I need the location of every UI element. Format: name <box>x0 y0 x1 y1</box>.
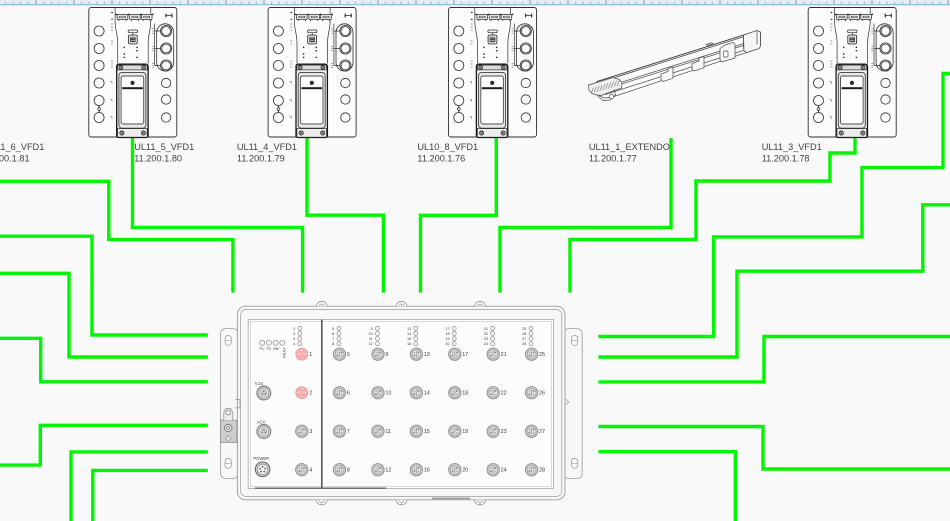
svg-text:20: 20 <box>462 468 468 474</box>
svg-text:11.200.1.76: 11.200.1.76 <box>417 153 465 163</box>
svg-text:11.200.1.79: 11.200.1.79 <box>237 153 285 163</box>
svg-text:UL10_8_VFD1: UL10_8_VFD1 <box>417 142 478 152</box>
svg-text:11.200.1.80: 11.200.1.80 <box>134 153 182 163</box>
svg-text:28: 28 <box>539 468 545 474</box>
svg-text:6: 6 <box>332 332 334 336</box>
svg-text:11.200.1.77: 11.200.1.77 <box>589 153 637 163</box>
svg-text:12: 12 <box>385 468 391 474</box>
svg-text:24: 24 <box>501 468 507 474</box>
svg-text:4: 4 <box>293 342 295 346</box>
svg-text:25: 25 <box>522 327 526 331</box>
svg-text:7: 7 <box>347 429 350 435</box>
svg-text:7: 7 <box>332 337 334 341</box>
svg-text:23: 23 <box>501 429 507 435</box>
svg-text:P2: P2 <box>267 347 271 351</box>
svg-text:11: 11 <box>369 337 373 341</box>
svg-text:FAULT: FAULT <box>283 347 287 357</box>
svg-text:17: 17 <box>462 352 468 358</box>
svg-text:20: 20 <box>445 342 449 346</box>
svg-text:4: 4 <box>309 468 312 474</box>
svg-text:18: 18 <box>445 332 449 336</box>
svg-text:25: 25 <box>539 352 545 358</box>
svg-text:16: 16 <box>424 468 430 474</box>
svg-text:16: 16 <box>407 342 411 346</box>
svg-text:9: 9 <box>371 327 373 331</box>
svg-text:1: 1 <box>309 352 312 358</box>
svg-text:26: 26 <box>539 391 545 397</box>
svg-text:11.200.1.78: 11.200.1.78 <box>762 153 810 163</box>
svg-text:2: 2 <box>309 391 312 397</box>
svg-text:15: 15 <box>407 337 411 341</box>
svg-text:UL11_1_EXTENDO: UL11_1_EXTENDO <box>589 142 670 152</box>
svg-text:11.200.1.81: 11.200.1.81 <box>0 153 30 163</box>
svg-text:UL11_4_VFD1: UL11_4_VFD1 <box>237 142 297 152</box>
svg-text:10: 10 <box>385 391 391 397</box>
svg-text:26: 26 <box>522 332 526 336</box>
svg-text:12: 12 <box>369 342 373 346</box>
svg-text:21: 21 <box>501 352 507 358</box>
svg-text:27: 27 <box>522 337 526 341</box>
svg-text:14: 14 <box>424 391 430 397</box>
svg-text:23: 23 <box>484 337 488 341</box>
svg-text:22: 22 <box>501 391 507 397</box>
svg-text:5: 5 <box>332 327 334 331</box>
svg-text:9: 9 <box>385 352 388 358</box>
svg-text:24: 24 <box>484 342 488 346</box>
svg-text:RM: RM <box>273 347 279 351</box>
svg-text:28: 28 <box>522 342 526 346</box>
svg-text:2: 2 <box>293 332 295 336</box>
svg-text:11: 11 <box>385 429 391 435</box>
svg-text:19: 19 <box>445 337 449 341</box>
svg-text:19: 19 <box>462 429 468 435</box>
svg-text:22: 22 <box>484 332 488 336</box>
svg-text:10: 10 <box>369 332 373 336</box>
svg-text:14: 14 <box>407 332 411 336</box>
svg-text:V.24: V.24 <box>255 381 264 386</box>
svg-text:27: 27 <box>539 429 545 435</box>
svg-text:13: 13 <box>407 327 411 331</box>
svg-text:UL11_6_VFD1: UL11_6_VFD1 <box>0 142 44 152</box>
svg-text:POWER: POWER <box>253 456 269 461</box>
svg-text:13: 13 <box>424 352 430 358</box>
svg-text:3: 3 <box>293 337 295 341</box>
svg-text:15: 15 <box>424 429 430 435</box>
svg-text:17: 17 <box>445 327 449 331</box>
svg-text:18: 18 <box>462 391 468 397</box>
svg-text:6: 6 <box>347 391 350 397</box>
svg-text:UL11_5_VFD1: UL11_5_VFD1 <box>134 142 194 152</box>
svg-text:3: 3 <box>309 429 312 435</box>
svg-text:8: 8 <box>347 468 350 474</box>
svg-text:UL11_3_VFD1: UL11_3_VFD1 <box>762 142 822 152</box>
svg-text:8: 8 <box>332 342 334 346</box>
svg-text:P1: P1 <box>260 347 264 351</box>
svg-text:21: 21 <box>484 327 488 331</box>
svg-text:5: 5 <box>347 352 350 358</box>
svg-text:ACA: ACA <box>257 420 266 425</box>
svg-text:1: 1 <box>293 327 295 331</box>
